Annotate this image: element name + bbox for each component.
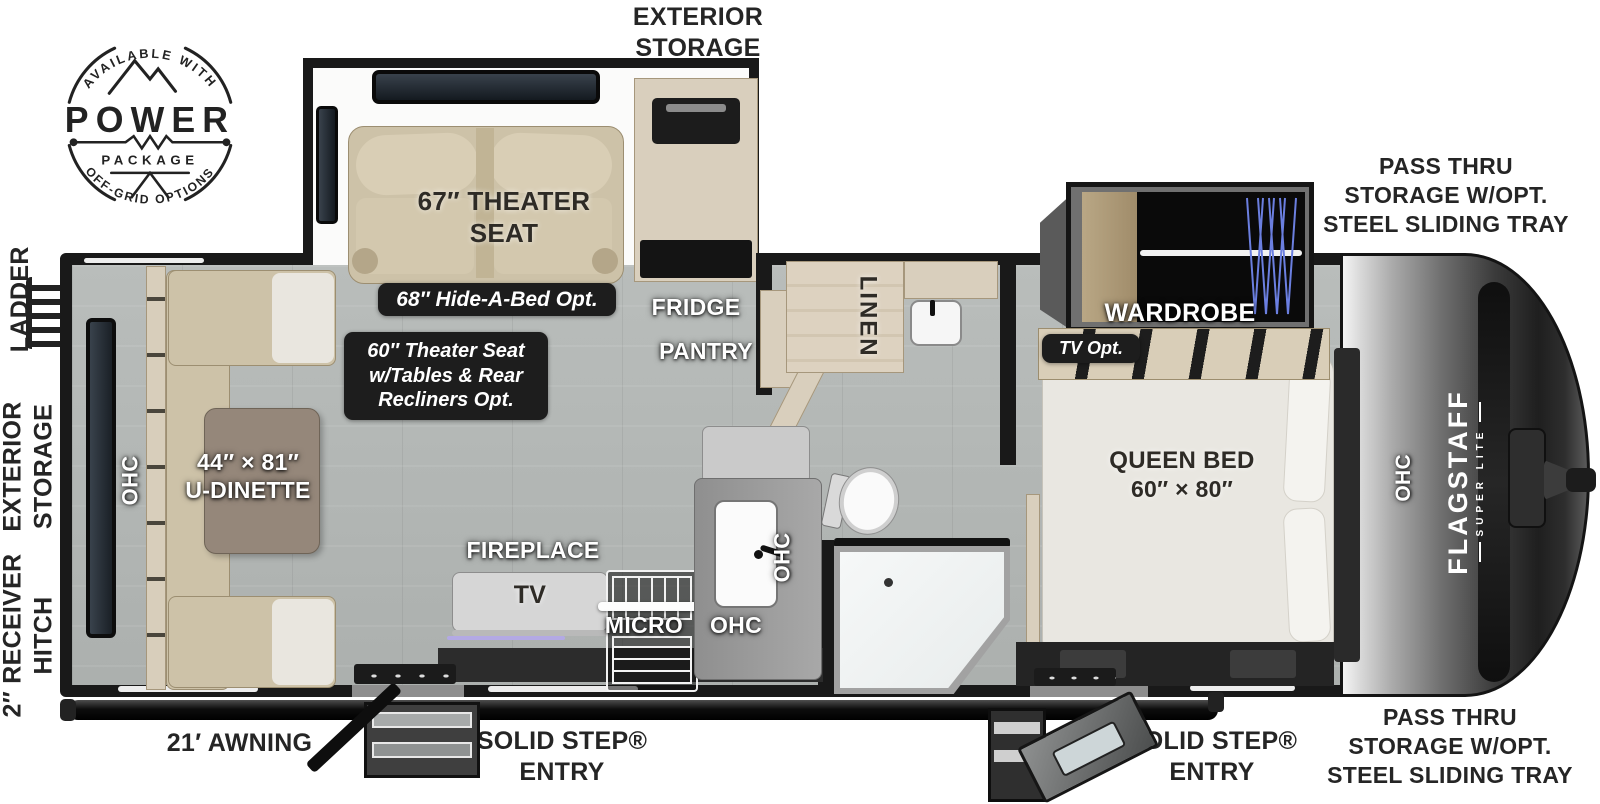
u-dinette-line: U-DINETTE [152, 476, 344, 504]
shower-drain [884, 578, 893, 587]
theater-opt-line: Recliners Opt. [378, 388, 514, 412]
bath-vanity [904, 261, 998, 299]
ohc-bedroom-label: OHC [1391, 438, 1417, 518]
brand-name: FLAGSTAFF [1443, 367, 1474, 597]
ohc-kitchen-wall-label: OHC [770, 512, 797, 602]
wall-bath-bedroom [1000, 253, 1016, 465]
fridge-front [640, 240, 752, 278]
oven-front [612, 636, 692, 684]
u-dinette-label: 44″ × 81″ U-DINETTE [152, 448, 344, 504]
queen-bed-line: QUEEN BED [1082, 446, 1282, 475]
awning-end-cap [60, 699, 76, 721]
micro-handle-bar [598, 602, 704, 611]
entry-label-line: ENTRY [1102, 757, 1322, 788]
pantry-label: PANTRY [645, 337, 767, 365]
queen-bed-label: QUEEN BED 60″ × 80″ [1082, 446, 1282, 503]
theater-seat-option-pill: 60″ Theater Seat w/Tables & Rear Recline… [344, 332, 548, 420]
sofa-recliner-knob [592, 248, 618, 274]
counter-upper [702, 426, 810, 484]
theater-opt-line: w/Tables & Rear [369, 364, 523, 388]
tongue-jack [1508, 428, 1546, 528]
window-slit [84, 258, 204, 263]
pass-thru-line: STORAGE W/OPT. [1295, 181, 1597, 210]
badge-rule-dot [224, 140, 229, 145]
dinette-pillow [272, 599, 334, 685]
tv-label: TV [498, 580, 562, 611]
pass-thru-line: STORAGE W/OPT. [1302, 732, 1598, 761]
entry-main-label: SOLID STEP® ENTRY [452, 726, 672, 787]
bath-faucet [930, 300, 935, 316]
pass-thru-storage-top-label: PASS THRU STORAGE W/OPT. STEEL SLIDING T… [1295, 152, 1597, 238]
brand-dash [1479, 542, 1481, 562]
badge-subtitle: PACKAGE [101, 153, 198, 168]
entry-step-plate [354, 664, 456, 684]
entry-label-line: SOLID STEP® [452, 726, 672, 757]
fireplace-label: FIREPLACE [452, 536, 614, 564]
awning-bracket [1208, 692, 1224, 712]
brand-dash [1479, 402, 1481, 422]
slideout-window [372, 70, 600, 104]
pass-thru-line: PASS THRU [1295, 152, 1597, 181]
hitch-ball-mount [1566, 468, 1596, 492]
queen-bed-line: 60″ × 80″ [1082, 475, 1282, 503]
tv-option-pill: TV Opt. [1042, 334, 1140, 363]
entry-label-line: ENTRY [452, 757, 672, 788]
bed-pillow [1283, 507, 1332, 643]
dinette-pillow [272, 273, 334, 363]
brand-logo: FLAGSTAFF SUPER LITE [1443, 367, 1489, 597]
bed-pillow [1283, 367, 1332, 503]
badge-rule-dot [71, 140, 76, 145]
ohc-kitchen-label: OHC [698, 611, 774, 639]
theater-seat-label: 67″ THEATER SEAT [404, 186, 604, 249]
brand-series: SUPER LITE [1475, 367, 1486, 597]
fridge-label: FRIDGE [635, 293, 757, 321]
microwave-handle [666, 104, 726, 112]
bath-sink [910, 300, 962, 346]
bedroom-cabinet-inset [1230, 650, 1296, 678]
power-package-badge: AVAILABLE WITH POWER PACKAGE OFF-GRID OP… [48, 22, 252, 234]
step-tread [994, 722, 1040, 734]
step-tread [372, 742, 472, 758]
u-dinette-line: 44″ × 81″ [152, 448, 344, 476]
pass-thru-line: STEEL SLIDING TRAY [1302, 761, 1598, 790]
theater-opt-line: 60″ Theater Seat [367, 339, 524, 363]
wardrobe-label: WARDROBE [1090, 298, 1270, 329]
rear-window [86, 318, 116, 638]
step-tread [372, 712, 472, 728]
micro-label: MICRO [596, 611, 692, 639]
bath-door-open [1026, 494, 1040, 666]
entry-threshold [352, 685, 464, 697]
sofa-recliner-knob [352, 248, 378, 274]
fireplace-glow [447, 636, 565, 640]
exterior-storage-top-label: EXTERIOR STORAGE [608, 2, 788, 63]
linen-closet [786, 261, 904, 373]
theater-seat-line: 67″ THEATER [404, 186, 604, 218]
kitchen-faucet-base [754, 550, 763, 559]
hide-a-bed-option-pill: 68″ Hide-A-Bed Opt. [378, 283, 616, 316]
linen-label: LINEN [853, 261, 882, 373]
receiver-hitch-label: 2″ RECEIVER HITCH [0, 536, 59, 736]
theater-seat-line: SEAT [404, 218, 604, 250]
pass-thru-line: PASS THRU [1302, 703, 1598, 732]
pass-thru-line: STEEL SLIDING TRAY [1295, 210, 1597, 239]
badge-arc-top-text: AVAILABLE WITH [79, 46, 220, 91]
floorplan-diagram: AVAILABLE WITH POWER PACKAGE OFF-GRID OP… [0, 0, 1600, 804]
pass-thru-storage-bottom-label: PASS THRU STORAGE W/OPT. STEEL SLIDING T… [1302, 703, 1598, 789]
badge-arc-bottom-text: OFF-GRID OPTIONS [83, 164, 218, 207]
entry-step-plate [1034, 668, 1116, 686]
kitchen-sink [714, 500, 778, 608]
ohc-dinette-label: OHC [118, 435, 145, 525]
slideout-side-window [316, 106, 338, 224]
brand-series-text: SUPER LITE [1475, 428, 1486, 537]
bed-headboard-cabinet [1334, 348, 1360, 662]
